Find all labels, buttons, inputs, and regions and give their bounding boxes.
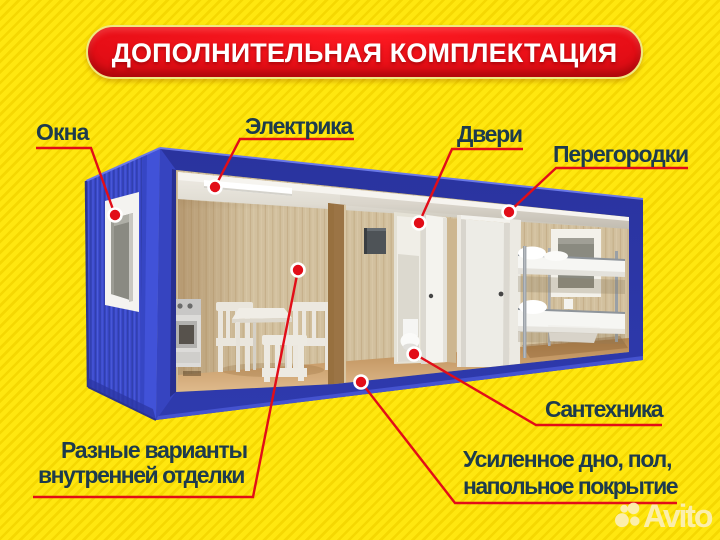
svg-text:Avito: Avito [643, 498, 713, 534]
